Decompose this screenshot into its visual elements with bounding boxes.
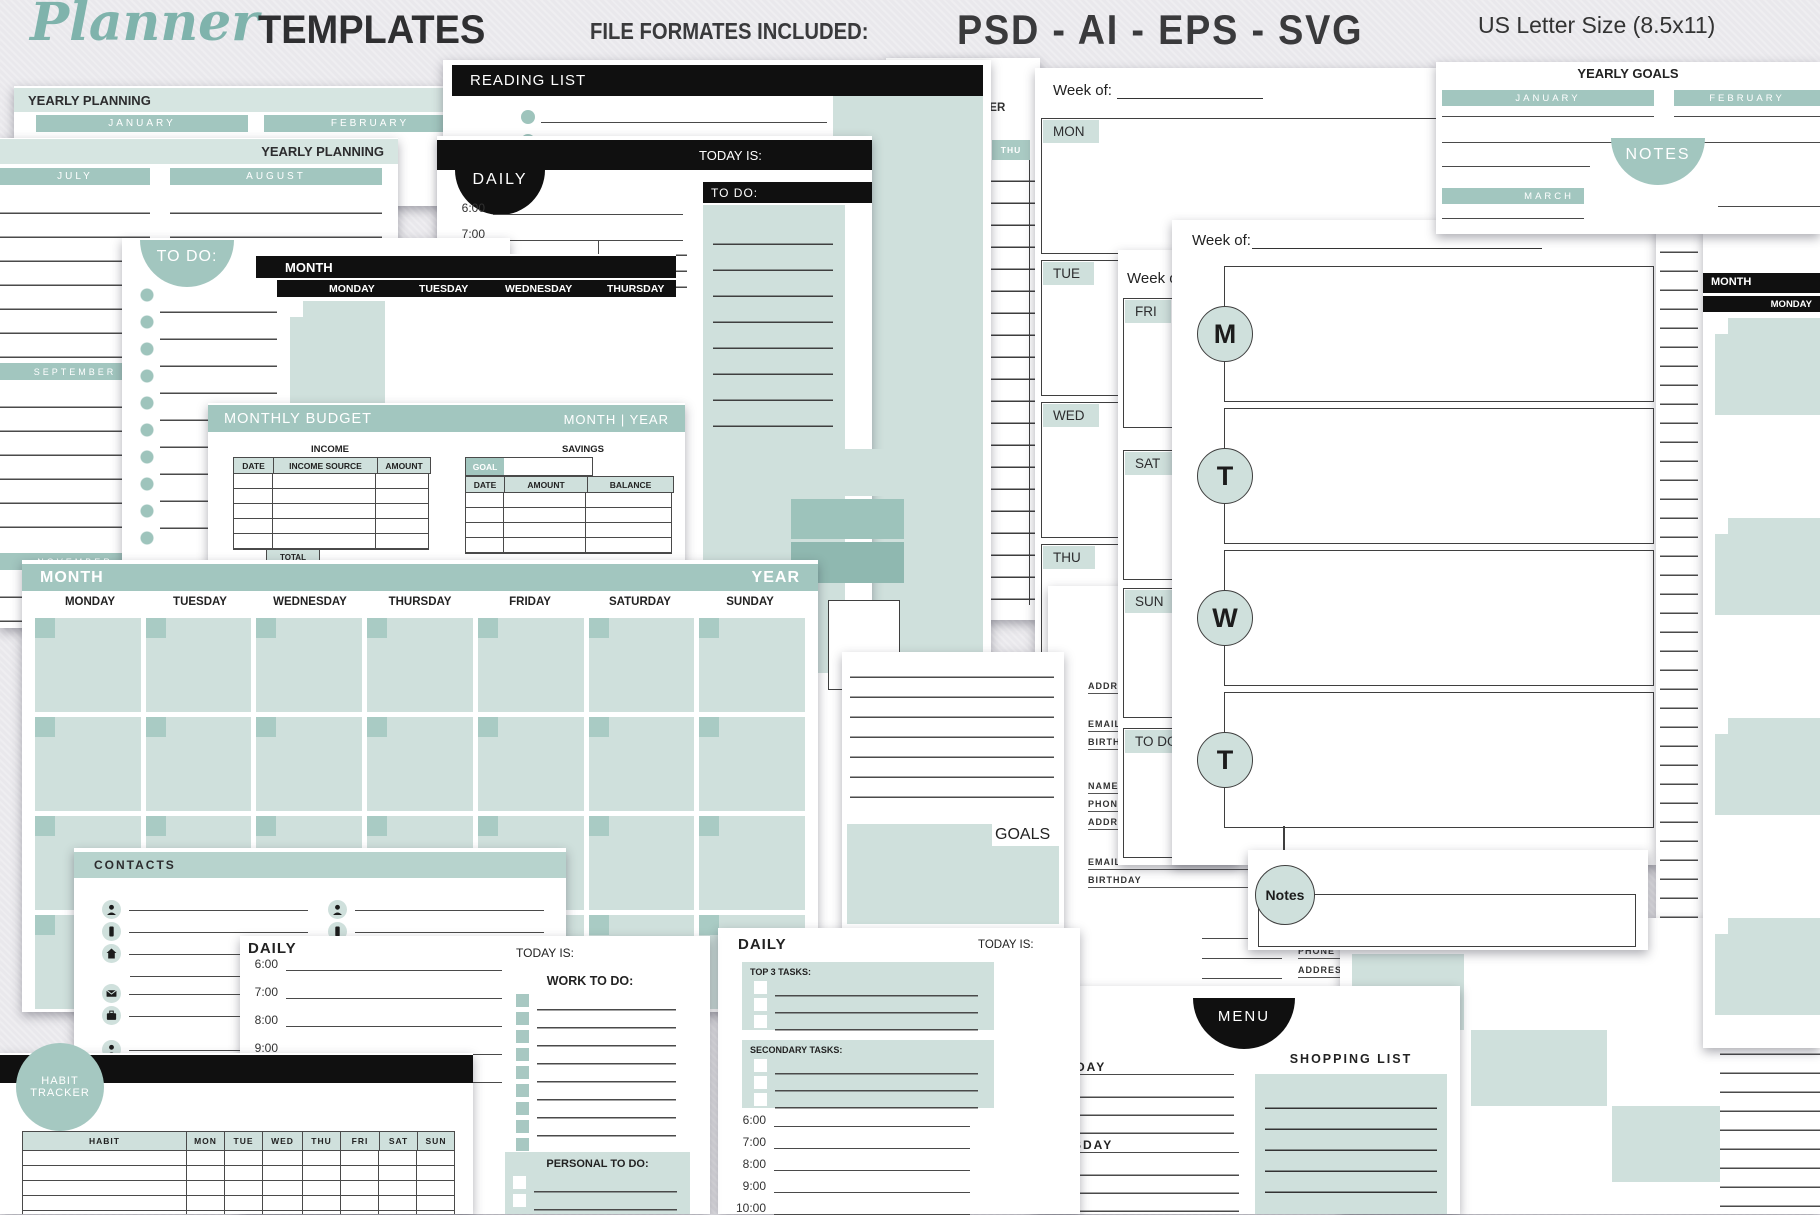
personal-todo-rows xyxy=(513,1176,681,1212)
budget-title: MONTHLY BUDGET xyxy=(224,411,372,427)
month-bar-july: JULY xyxy=(0,168,150,185)
savings-goal-value-cell xyxy=(504,457,593,476)
col-header: SUN xyxy=(418,1131,455,1151)
goals-lines xyxy=(1720,1036,1820,1214)
page-title: YEARLY GOALS xyxy=(1436,66,1820,80)
habit-header-row: HABIT MON TUE WED THU FRI SAT SUN xyxy=(22,1131,455,1151)
person-icon xyxy=(328,900,347,919)
formats-list: PSD - AI - EPS - SVG xyxy=(957,6,1363,54)
todo-label: TO DO: xyxy=(711,186,758,200)
month-bar-february: FEBRUARY xyxy=(1674,90,1820,106)
mail-icon xyxy=(102,984,121,1003)
birthday-label: BIRTHDAY xyxy=(1088,875,1250,888)
notes-tab: NOTES xyxy=(1611,138,1705,185)
brand-bold-logo: TEMPLATES xyxy=(258,8,485,53)
income-col-line xyxy=(375,474,376,549)
ruled-lines xyxy=(850,658,1054,816)
habit-col-line xyxy=(302,1151,303,1214)
notes-tab-circle: Notes xyxy=(1255,865,1315,925)
time-row: 6:00 xyxy=(451,200,683,215)
month-day-cell xyxy=(146,618,252,712)
col-header: THU xyxy=(303,1131,341,1151)
col-header: MON xyxy=(187,1131,225,1151)
month-bar-january: JANUARY xyxy=(36,115,248,132)
task-rows xyxy=(754,1059,982,1110)
col-header: AMOUNT xyxy=(378,457,431,474)
income-label: INCOME xyxy=(278,443,382,455)
weekday-label: WEDNESDAY xyxy=(255,596,365,612)
page-title: YEARLY PLANNING xyxy=(28,93,151,108)
day-box-label: TUE xyxy=(1043,262,1094,285)
shopping-list-panel xyxy=(1255,1074,1447,1214)
month-day-cell xyxy=(478,717,584,811)
header-banner: Planner TEMPLATES FILE FORMATES INCLUDED… xyxy=(0,0,1820,62)
month-bar-march: MARCH xyxy=(1442,188,1584,204)
notes-box xyxy=(1258,894,1636,947)
habit-table-body xyxy=(22,1151,455,1214)
time-row: 9:00 xyxy=(732,1178,970,1193)
day-cell xyxy=(1612,1106,1720,1182)
phone-icon xyxy=(102,922,121,941)
weekday-label: MONDAY xyxy=(1771,299,1812,310)
tracker-grid-vline xyxy=(1029,160,1030,605)
swatch-block-medium xyxy=(791,499,904,539)
habit-col-line xyxy=(262,1151,263,1214)
col-header: FRI xyxy=(341,1131,380,1151)
week-box-tuesday xyxy=(1224,408,1654,544)
daily-title-bar: TODAY IS: xyxy=(437,140,872,170)
formats-label: FILE FORMATES INCLUDED: xyxy=(590,18,868,45)
day-box-label: THU xyxy=(1043,546,1095,569)
notes-box-page: Notes xyxy=(1248,850,1648,950)
habit-tracker-page: HABIT TRACKER HABIT MON TUE WED THU FRI … xyxy=(0,1053,473,1214)
weekday-label: TUESDAY xyxy=(419,283,468,295)
col-header: TUE xyxy=(225,1131,263,1151)
label: SAVINGS xyxy=(562,444,604,455)
time-row: 8:00 xyxy=(244,1012,502,1027)
month-column-page: MONTH MONDAY xyxy=(1703,228,1820,1048)
savings-col-line xyxy=(503,493,504,553)
habit-col-line xyxy=(416,1151,417,1214)
work-todo-title: WORK TO DO: xyxy=(520,974,660,988)
time-row: 10:00 xyxy=(732,1200,970,1215)
briefcase-icon xyxy=(102,1006,121,1025)
weekday-label: SATURDAY xyxy=(585,596,695,612)
week-box-thursday xyxy=(1224,692,1654,828)
day-label: THU xyxy=(1053,550,1081,565)
menu-tab: MENU xyxy=(1193,998,1295,1049)
income-table-body xyxy=(233,474,429,550)
month-day-cell xyxy=(146,717,252,811)
weekday-row: MONDAY TUESDAY WEDNESDAY THURSDAY FRIDAY… xyxy=(35,596,805,612)
todo-title-bar: TO DO: xyxy=(703,182,872,203)
budget-title-bar: MONTHLY BUDGET MONTH | YEAR xyxy=(208,405,685,432)
weekday-label: TUESDAY xyxy=(145,596,255,612)
entry-line xyxy=(1202,978,1282,979)
page-title: YEARLY PLANNING xyxy=(261,144,384,159)
goal-label: GOAL xyxy=(473,462,498,472)
week-of-label: Week of: xyxy=(1053,82,1112,99)
habit-title-line2: TRACKER xyxy=(30,1087,90,1099)
month-day-cell xyxy=(367,717,473,811)
time-row: 6:00 xyxy=(732,1112,970,1127)
weekday-bar: MONDAY xyxy=(1703,296,1820,312)
col-header: HABIT xyxy=(22,1131,187,1151)
day-initial: T xyxy=(1217,745,1234,776)
time-row: 7:00 xyxy=(732,1134,970,1149)
month-day-cell xyxy=(35,618,141,712)
month-bar-august: AUGUST xyxy=(170,168,382,185)
income-header-row: DATE INCOME SOURCE AMOUNT xyxy=(233,457,431,474)
month-bar-january: JANUARY xyxy=(1442,90,1654,106)
col-header: SAT xyxy=(380,1131,418,1151)
todo-tab: TO DO: xyxy=(140,240,234,287)
habit-col-line xyxy=(378,1151,379,1214)
month-day-cell xyxy=(699,717,805,811)
time-label: 7:00 xyxy=(244,985,278,999)
page-title-bar: YEARLY PLANNING xyxy=(0,139,398,164)
weekday-label: SUNDAY xyxy=(695,596,805,612)
day-label: THU xyxy=(1001,145,1021,155)
habit-col-line xyxy=(340,1151,341,1214)
week-of-line xyxy=(1117,98,1263,99)
notes-tab-label: NOTES xyxy=(1625,146,1690,164)
month-day-cell xyxy=(589,816,695,910)
shopping-list-title: SHOPPING LIST xyxy=(1255,1052,1447,1066)
month-day-cell xyxy=(589,717,695,811)
col-header: DATE xyxy=(465,476,505,493)
col-header: INCOME SOURCE xyxy=(274,457,378,474)
page-title-bar: YEARLY PLANNING xyxy=(14,88,492,112)
week-box-wednesday xyxy=(1224,550,1654,686)
goal-line xyxy=(1718,206,1820,207)
time-label: 10:00 xyxy=(732,1201,766,1215)
shopping-list-lines xyxy=(1265,1088,1437,1210)
swatch-block-light xyxy=(791,449,904,496)
time-label: 9:00 xyxy=(732,1179,766,1193)
time-row: 8:00 xyxy=(732,1156,970,1171)
month-label: FEBRUARY xyxy=(1709,93,1785,104)
weekday-label: MONDAY xyxy=(35,596,145,612)
time-label: 6:00 xyxy=(244,957,278,971)
time-row: 7:00 xyxy=(244,984,502,999)
weekday-label: WEDNESDAY xyxy=(505,283,572,295)
col-header: AMOUNT xyxy=(505,476,588,493)
yearly-goals-page: YEARLY GOALS JANUARY FEBRUARY NOTES MARC… xyxy=(1436,62,1820,234)
time-label: 8:00 xyxy=(244,1013,278,1027)
day-box-label: SUN xyxy=(1125,590,1178,613)
month-title-bar: MONTH YEAR xyxy=(22,564,818,591)
title-text: WORK TO DO: xyxy=(547,974,634,988)
col-header: BALANCE xyxy=(588,476,674,493)
day-label: WED xyxy=(1053,408,1085,423)
month-label: FEBRUARY xyxy=(331,118,409,129)
day-initial-t2: T xyxy=(1197,732,1253,788)
today-is-label: TODAY IS: xyxy=(699,148,762,163)
contacts-title: CONTACTS xyxy=(94,858,176,872)
top-tasks-label: TOP 3 TASKS: xyxy=(750,967,811,977)
budget-period: MONTH | YEAR xyxy=(564,412,669,427)
day-box-label: WED xyxy=(1043,404,1099,427)
personal-todo-panel: PERSONAL TO DO: xyxy=(505,1152,690,1214)
entry-line xyxy=(1202,958,1282,959)
title-text: PERSONAL TO DO: xyxy=(546,1158,648,1170)
day-initial-m: M xyxy=(1197,306,1253,362)
contacts-title-bar: CONTACTS xyxy=(74,852,566,878)
goal-line xyxy=(1674,116,1820,117)
week-cell xyxy=(1715,718,1820,815)
day-label: SUN xyxy=(1135,594,1164,609)
work-todo-rows xyxy=(516,994,680,1154)
secondary-tasks-label: SECONDARY TASKS: xyxy=(750,1045,842,1055)
month-day-cell xyxy=(367,618,473,712)
day-box-label: SAT xyxy=(1125,452,1174,475)
task-rows xyxy=(754,981,982,1032)
day-box-label: FRI xyxy=(1125,300,1171,323)
time-row: 6:00 xyxy=(244,956,502,971)
day-initial: M xyxy=(1214,319,1237,350)
week-boxes-page: Week of: M T W T xyxy=(1172,220,1660,865)
week-box-monday xyxy=(1224,266,1654,402)
year-label: YEAR xyxy=(752,569,800,587)
top-tasks-panel: TOP 3 TASKS: xyxy=(742,962,994,1030)
day-initial: T xyxy=(1217,461,1234,492)
habit-title-line1: HABIT xyxy=(41,1075,78,1087)
contact-row xyxy=(328,900,544,919)
savings-col-line xyxy=(585,493,586,553)
month-title: MONTH xyxy=(285,260,333,275)
month-label: MARCH xyxy=(1524,191,1574,202)
time-label: 7:00 xyxy=(732,1135,766,1149)
title-text: SHOPPING LIST xyxy=(1290,1052,1413,1066)
col-header: WED xyxy=(263,1131,303,1151)
size-note: US Letter Size (8.5x11) xyxy=(1478,12,1715,39)
day-initial-t: T xyxy=(1197,448,1253,504)
habit-col-line xyxy=(224,1151,225,1214)
notes-label: Notes xyxy=(1266,887,1305,903)
day-label: TUE xyxy=(1053,266,1080,281)
day-initial-w: W xyxy=(1197,590,1253,646)
week-cell xyxy=(1715,518,1820,615)
list-bullet xyxy=(521,110,535,124)
month-label: AUGUST xyxy=(246,171,306,182)
weekday-label: MONDAY xyxy=(329,283,375,295)
goals-label: GOALS xyxy=(995,826,1050,844)
weekday-label: THURSDAY xyxy=(607,283,664,295)
month-label: JANUARY xyxy=(1515,93,1580,104)
goal-line xyxy=(1442,116,1654,117)
contact-row xyxy=(102,900,308,919)
weekday-label: THURSDAY xyxy=(365,596,475,612)
savings-table-body xyxy=(465,493,672,554)
week-of-line xyxy=(1252,248,1542,249)
secondary-tasks-panel: SECONDARY TASKS: xyxy=(742,1040,994,1108)
menu-tab-label: MENU xyxy=(1218,1008,1270,1025)
week-cell xyxy=(1715,318,1820,415)
week-cell xyxy=(1715,918,1820,1015)
daily-tasks-page: DAILY TODAY IS: TOP 3 TASKS: SECONDARY T… xyxy=(718,928,1080,1214)
grid-day-thu: THU xyxy=(992,140,1030,160)
goal-line xyxy=(1442,166,1590,167)
month-day-cell xyxy=(478,618,584,712)
todo-bullets xyxy=(140,284,154,550)
day-box-label: MON xyxy=(1043,120,1099,143)
day-cell xyxy=(1471,1030,1607,1106)
list-line xyxy=(541,122,827,123)
meal-menu-page: MENU MONDAY TUESDAY SHOPPING LIST xyxy=(1032,986,1460,1214)
today-is-label: TODAY IS: xyxy=(516,946,574,960)
habit-tracker-tab: HABIT TRACKER xyxy=(16,1043,104,1131)
habit-col-line xyxy=(186,1151,187,1214)
day-label: SAT xyxy=(1135,456,1160,471)
month-week-strip-page: MONTH MONDAY TUESDAY WEDNESDAY THURSDAY xyxy=(256,254,676,424)
day-label: MON xyxy=(1053,124,1085,139)
ruled-lines xyxy=(1660,234,1698,1034)
title-text: YEARLY GOALS xyxy=(1577,66,1678,81)
weekday-label: FRIDAY xyxy=(475,596,585,612)
time-label: 8:00 xyxy=(732,1157,766,1171)
savings-header-row: DATE AMOUNT BALANCE xyxy=(465,476,674,493)
goals-note-page: GOALS xyxy=(842,652,1064,934)
monthly-budget-page: MONTHLY BUDGET MONTH | YEAR INCOME DATE … xyxy=(208,403,685,573)
todo-tab-label: TO DO: xyxy=(157,248,218,266)
month-label: JULY xyxy=(57,171,93,182)
weekday-bar: MONDAY TUESDAY WEDNESDAY THURSDAY xyxy=(277,280,676,297)
daily-title: DAILY xyxy=(248,940,297,957)
month-title: MONTH xyxy=(40,569,104,587)
month-day-cell xyxy=(699,618,805,712)
col-header: DATE xyxy=(233,457,274,474)
label: INCOME xyxy=(311,444,349,455)
month-day-cell xyxy=(589,618,695,712)
month-day-cell xyxy=(699,816,805,910)
month-day-cell xyxy=(256,717,362,811)
day-initial: W xyxy=(1212,603,1237,634)
person-icon xyxy=(102,900,121,919)
brand-script-logo: Planner xyxy=(30,0,259,53)
page-title: READING LIST xyxy=(470,72,586,89)
time-label: 6:00 xyxy=(451,201,485,215)
goal-line xyxy=(1442,218,1584,219)
home-icon xyxy=(102,944,121,963)
month-label: JANUARY xyxy=(108,118,176,129)
savings-goal-cell: GOAL xyxy=(465,457,505,476)
todo-lines xyxy=(713,219,833,427)
daily-tab-label: DAILY xyxy=(472,171,527,189)
month-title: MONTH xyxy=(1711,276,1751,288)
month-label: SEPTEMBER xyxy=(34,367,117,377)
week-of-label: Week of: xyxy=(1192,232,1251,249)
month-title-bar: MONTH xyxy=(1703,273,1820,293)
time-label: 6:00 xyxy=(732,1113,766,1127)
savings-label: SAVINGS xyxy=(531,443,635,455)
day-label: FRI xyxy=(1135,304,1157,319)
income-col-line xyxy=(272,474,273,549)
month-day-cell xyxy=(256,618,362,712)
month-day-cell xyxy=(35,717,141,811)
reading-list-title-bar: READING LIST xyxy=(452,65,983,96)
today-is-label: TODAY IS: xyxy=(978,939,1034,951)
personal-todo-title: PERSONAL TO DO: xyxy=(505,1158,690,1170)
month-title-bar: MONTH xyxy=(256,256,676,278)
daily-title: DAILY xyxy=(738,936,787,953)
